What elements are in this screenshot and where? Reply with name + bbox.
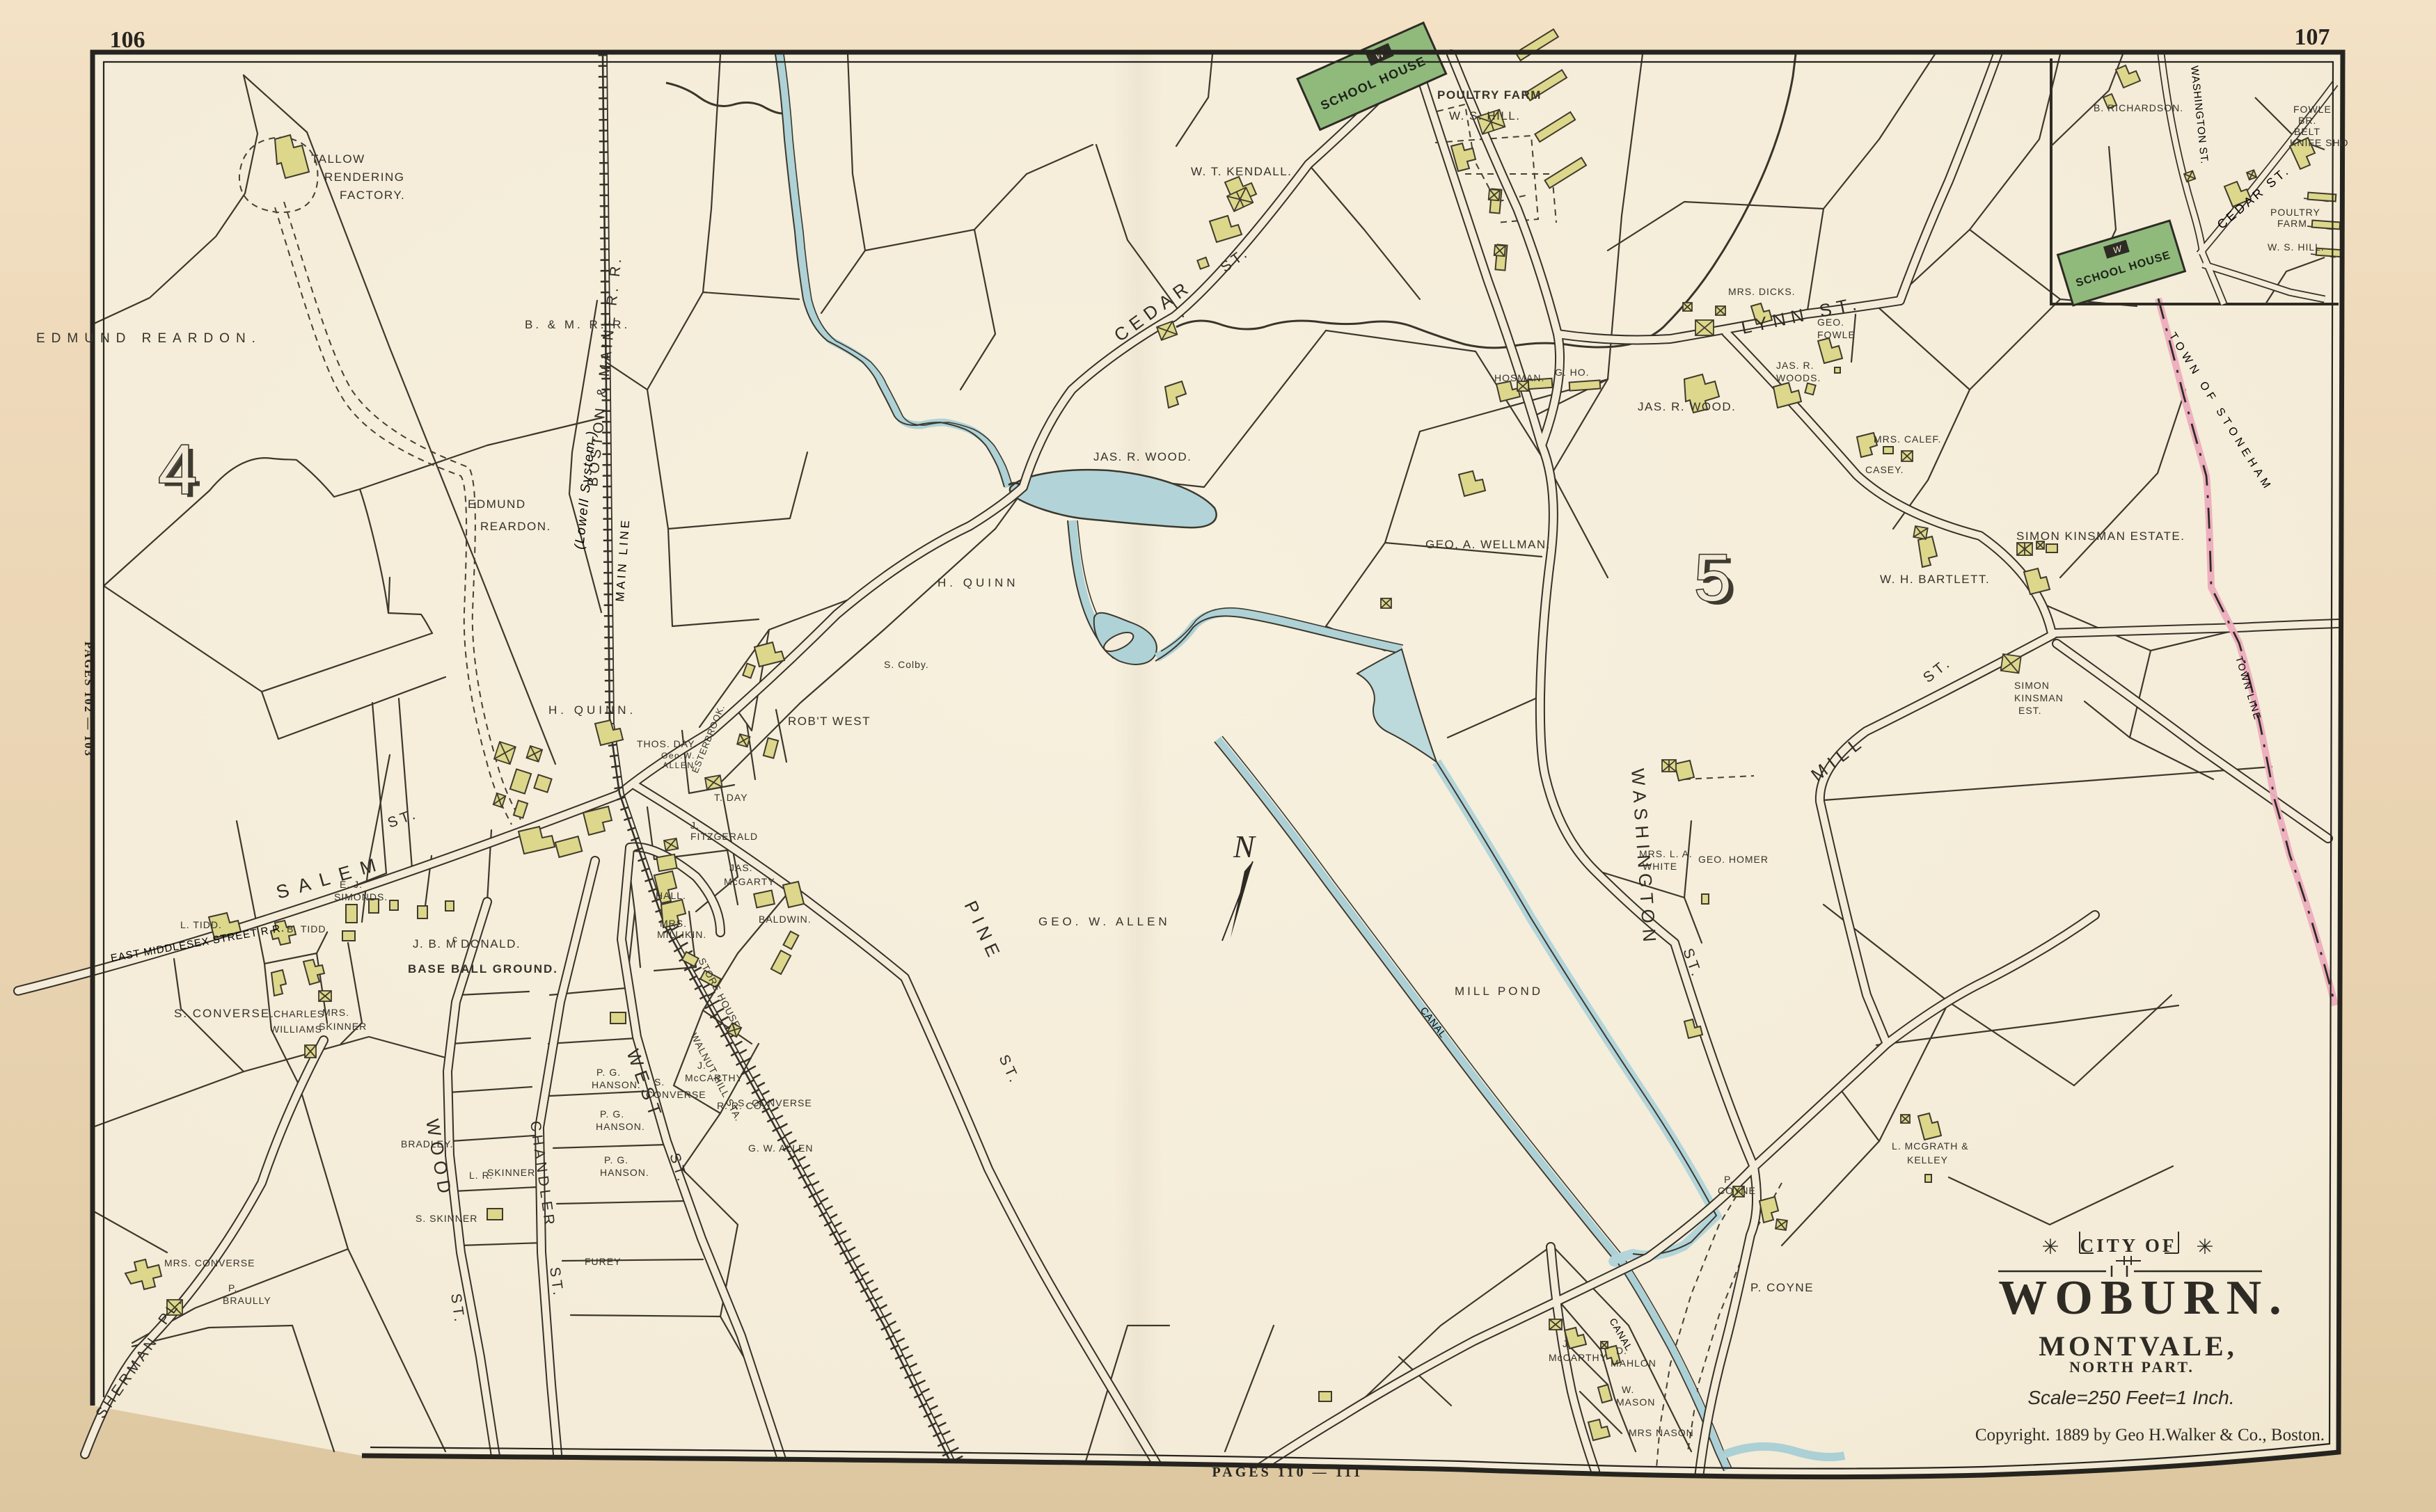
svg-text:WOODS.: WOODS.: [1776, 372, 1821, 383]
svg-text:P. G.: P. G.: [604, 1154, 628, 1165]
svg-text:S. Colby.: S. Colby.: [884, 659, 929, 670]
svg-text:PAGES 102 — 103: PAGES 102 — 103: [82, 642, 95, 757]
svg-text:L. MCGRATH &: L. MCGRATH &: [1892, 1140, 1969, 1152]
svg-text:L. TIDD.: L. TIDD.: [180, 919, 222, 930]
svg-text:MILLIKIN.: MILLIKIN.: [657, 929, 706, 940]
svg-text:JAS. R. WOOD.: JAS. R. WOOD.: [1638, 400, 1736, 413]
svg-text:P.: P.: [1724, 1174, 1733, 1185]
svg-text:WOBURN.: WOBURN.: [1998, 1271, 2288, 1325]
svg-text:HANSON.: HANSON.: [596, 1121, 645, 1132]
svg-text:MRS. CALEF.: MRS. CALEF.: [1874, 433, 1941, 445]
svg-text:DONALD.: DONALD.: [461, 937, 521, 950]
svg-text:SKINNER: SKINNER: [487, 1167, 535, 1178]
svg-text:BASE BALL GROUND.: BASE BALL GROUND.: [408, 962, 558, 976]
svg-text:ALLEN: ALLEN: [663, 761, 695, 770]
svg-text:S. SKINNER: S. SKINNER: [416, 1213, 477, 1224]
svg-text:B. RICHARDSON.: B. RICHARDSON.: [2094, 102, 2183, 113]
svg-text:✳: ✳: [2041, 1236, 2059, 1259]
svg-text:SIMONDS.: SIMONDS.: [334, 891, 388, 902]
svg-text:BRAULLY: BRAULLY: [223, 1295, 271, 1306]
svg-text:NORTH PART.: NORTH PART.: [2069, 1358, 2194, 1376]
svg-text:✳: ✳: [2196, 1236, 2213, 1259]
svg-text:J. B. M: J. B. M: [413, 937, 457, 950]
svg-text:T. DAY: T. DAY: [714, 792, 748, 803]
svg-text:H. QUINN: H. QUINN: [938, 576, 1019, 589]
svg-text:MRS.: MRS.: [322, 1007, 349, 1018]
svg-text:McCARTHY: McCARTHY: [1549, 1352, 1607, 1363]
svg-text:FITZGERALD: FITZGERALD: [690, 831, 758, 842]
svg-text:B. TIDD.: B. TIDD.: [287, 923, 329, 934]
svg-text:W. H. BARTLETT.: W. H. BARTLETT.: [1880, 573, 1990, 586]
svg-text:EST.: EST.: [2018, 705, 2042, 716]
svg-text:Copyright. 1889 by Geo H.Walke: Copyright. 1889 by Geo H.Walker & Co., B…: [1975, 1426, 2325, 1445]
svg-text:ROB'T WEST: ROB'T WEST: [788, 715, 871, 728]
svg-text:MONTVALE,: MONTVALE,: [2039, 1330, 2237, 1362]
svg-text:KNIFE SHO: KNIFE SHO: [2290, 137, 2348, 148]
svg-text:BR.: BR.: [2298, 115, 2316, 126]
svg-text:P.: P.: [228, 1282, 237, 1294]
svg-text:WILLIAMS: WILLIAMS: [270, 1024, 322, 1035]
svg-text:P. G.: P. G.: [596, 1067, 621, 1078]
svg-text:CITY OF: CITY OF: [2080, 1235, 2177, 1256]
svg-text:CASEY.: CASEY.: [1865, 464, 1904, 475]
svg-text:107: 107: [2295, 24, 2330, 50]
svg-text:JAS. R. WOOD.: JAS. R. WOOD.: [1093, 450, 1192, 463]
svg-text:GEO. A. WELLMAN.: GEO. A. WELLMAN.: [1425, 538, 1551, 551]
svg-text:MRS.: MRS.: [660, 918, 687, 929]
svg-text:106: 106: [110, 27, 145, 53]
svg-text:REARDON.: REARDON.: [480, 520, 551, 533]
svg-text:4: 4: [158, 431, 197, 509]
svg-text:MRS. DICKS.: MRS. DICKS.: [1728, 286, 1796, 297]
svg-text:P. COYNE: P. COYNE: [1750, 1281, 1814, 1294]
svg-text:GEO. HOMER: GEO. HOMER: [1698, 854, 1769, 865]
svg-text:POULTRY FARM: POULTRY FARM: [1437, 88, 1542, 102]
svg-text:P. G.: P. G.: [600, 1108, 624, 1120]
svg-text:EDMUND REARDON.: EDMUND REARDON.: [36, 331, 262, 346]
svg-text:MASON: MASON: [1616, 1396, 1655, 1408]
svg-text:McGARTY: McGARTY: [724, 876, 775, 887]
svg-text:c: c: [452, 933, 458, 944]
svg-text:J.: J.: [1563, 1338, 1572, 1349]
svg-text:MRS NASON: MRS NASON: [1629, 1427, 1694, 1438]
svg-text:FOWLE: FOWLE: [2293, 104, 2332, 115]
svg-text:N: N: [1233, 829, 1256, 864]
svg-text:FOWLE: FOWLE: [1817, 329, 1856, 340]
svg-text:W. T. KENDALL.: W. T. KENDALL.: [1191, 165, 1292, 178]
svg-text:Scale=250 Feet=1 Inch.: Scale=250 Feet=1 Inch.: [2027, 1387, 2234, 1408]
svg-text:EDMUND: EDMUND: [468, 498, 526, 511]
svg-text:CHARLES: CHARLES: [274, 1008, 324, 1019]
svg-text:H. QUINN.: H. QUINN.: [548, 703, 636, 717]
svg-text:HOSMAN.: HOSMAN.: [1494, 372, 1544, 383]
svg-text:FARM.: FARM.: [2277, 218, 2311, 229]
svg-text:W.: W.: [1622, 1384, 1634, 1395]
svg-text:Geo.W.: Geo.W.: [661, 751, 695, 761]
svg-text:TALLOW: TALLOW: [311, 152, 365, 166]
svg-text:BELT: BELT: [2294, 126, 2320, 137]
svg-text:R. R. CO.: R. R. CO.: [717, 1100, 766, 1111]
svg-text:SIMON KINSMAN ESTATE.: SIMON KINSMAN ESTATE.: [2016, 530, 2185, 543]
svg-text:5: 5: [1694, 541, 1731, 615]
svg-text:FUREY: FUREY: [585, 1256, 621, 1267]
svg-text:POULTRY: POULTRY: [2270, 207, 2320, 218]
svg-text:KINSMAN: KINSMAN: [2014, 692, 2064, 703]
svg-text:MAHLON: MAHLON: [1611, 1358, 1656, 1369]
svg-text:W. S. HILL.: W. S. HILL.: [1449, 109, 1520, 122]
svg-text:GEO. W. ALLEN: GEO. W. ALLEN: [1038, 915, 1171, 928]
svg-text:G. HO.: G. HO.: [1555, 367, 1590, 378]
svg-text:J.: J.: [690, 820, 699, 831]
svg-text:THOS. DAY.: THOS. DAY.: [637, 738, 697, 749]
svg-text:KELLEY: KELLEY: [1907, 1154, 1948, 1165]
svg-text:SIMON: SIMON: [2014, 680, 2050, 691]
svg-text:COYNE: COYNE: [1718, 1185, 1756, 1196]
svg-text:HANSON.: HANSON.: [600, 1167, 649, 1178]
svg-text:MRS. CONVERSE: MRS. CONVERSE: [164, 1257, 255, 1268]
svg-text:JAS. R.: JAS. R.: [1776, 360, 1814, 371]
svg-text:BALDWIN.: BALDWIN.: [759, 914, 812, 925]
svg-text:RENDERING: RENDERING: [324, 170, 405, 184]
svg-text:MILL POND: MILL POND: [1455, 985, 1543, 998]
svg-text:JAS.: JAS.: [729, 862, 753, 873]
svg-text:G. W. ALLEN: G. W. ALLEN: [748, 1143, 813, 1154]
svg-text:SKINNER: SKINNER: [319, 1021, 367, 1032]
svg-text:FACTORY.: FACTORY.: [340, 189, 405, 202]
svg-text:PAGES 110 — 111: PAGES 110 — 111: [1212, 1465, 1363, 1480]
svg-text:HALL.: HALL.: [656, 890, 686, 901]
svg-text:W. S. HILL.: W. S. HILL.: [2268, 241, 2325, 253]
svg-text:S. CONVERSE.: S. CONVERSE.: [174, 1007, 275, 1020]
